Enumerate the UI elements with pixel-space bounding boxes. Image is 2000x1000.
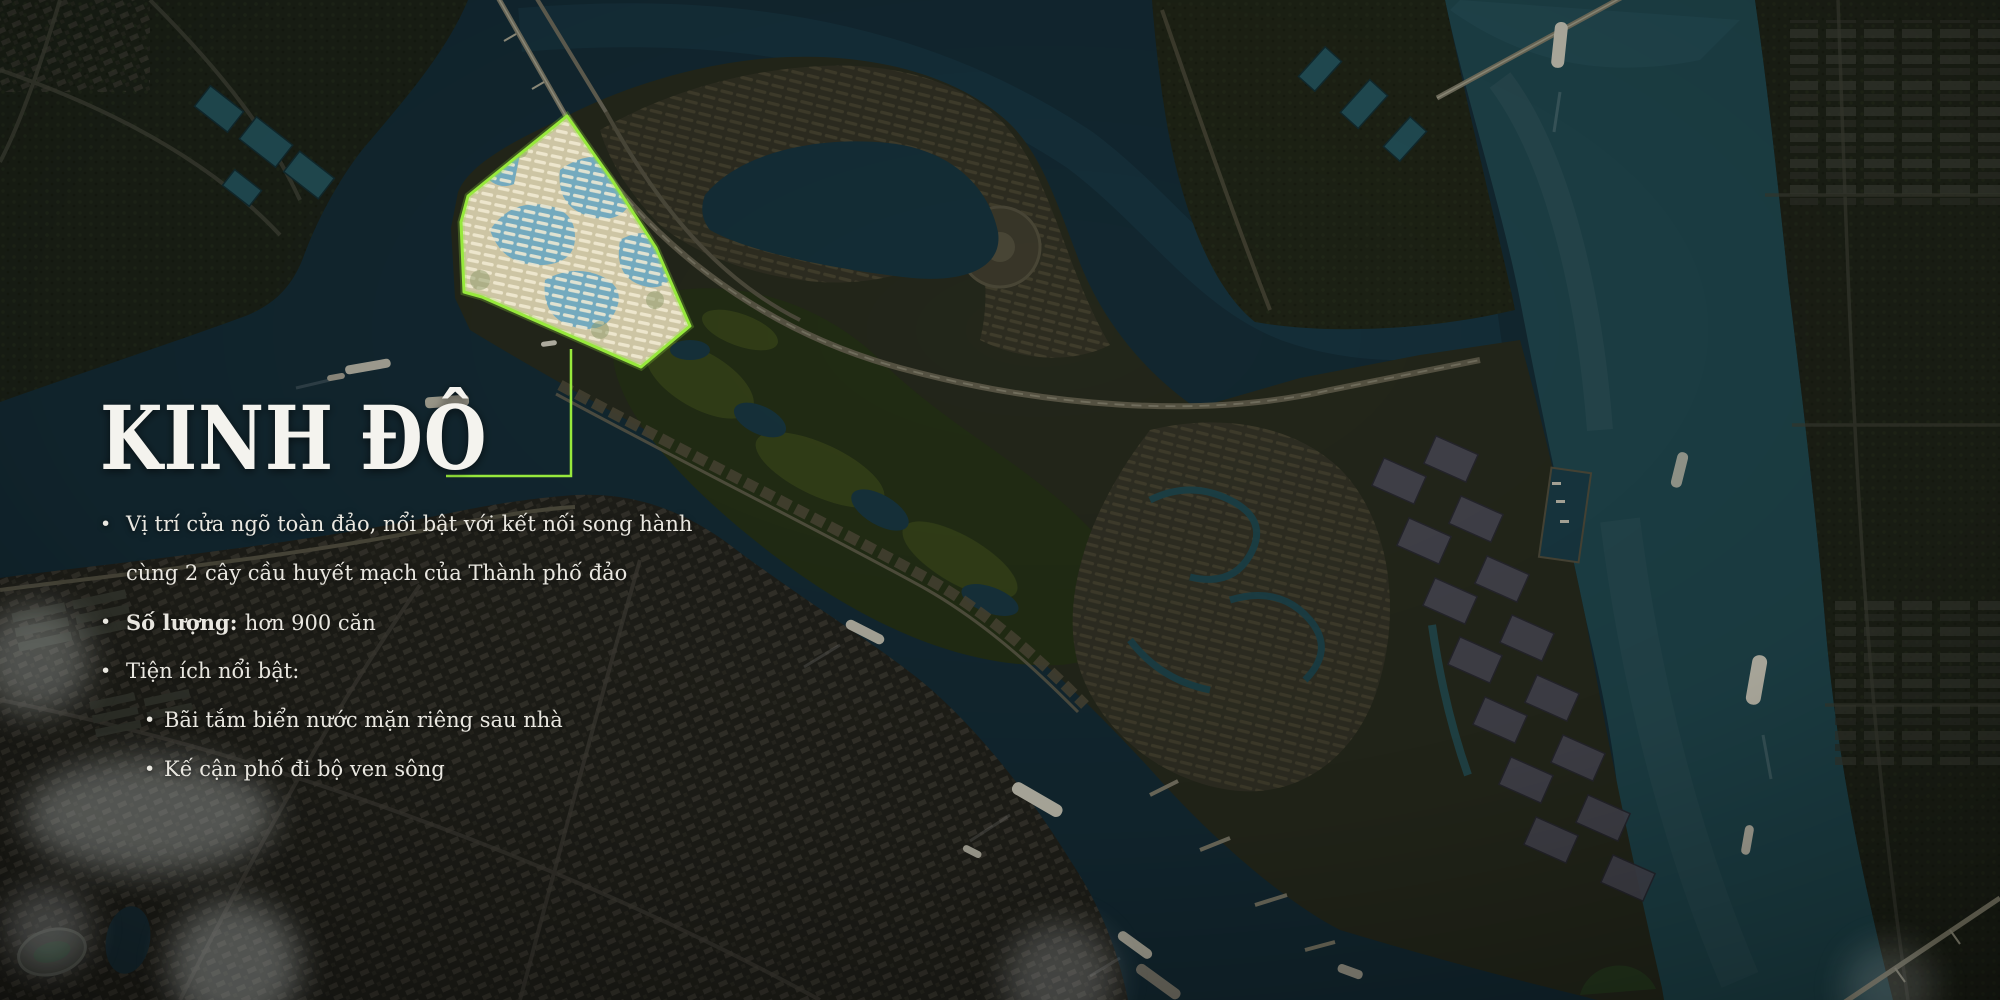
bullet-list: • Vị trí cửa ngõ toàn đảo, nổi bật với k…	[92, 500, 732, 794]
bullet-text: Tiện ích nổi bật:	[126, 659, 299, 683]
bullet-text: Số lượng:hơn 900 căn	[126, 611, 376, 635]
bullet-item: • Vị trí cửa ngõ toàn đảo, nổi bật với k…	[92, 500, 732, 549]
bullet-item: • Tiện ích nổi bật:	[92, 647, 732, 696]
bullet-subitem: • Kế cận phố đi bộ ven sông	[92, 745, 732, 794]
bullet-dot: •	[144, 745, 155, 794]
bullet-subitem: • Bãi tắm biển nước mặn riêng sau nhà	[92, 696, 732, 745]
bullet-text: Kế cận phố đi bộ ven sông	[164, 757, 445, 781]
bullet-item-continuation: cùng 2 cây cầu huyết mạch của Thành phố …	[92, 549, 732, 598]
bullet-text: cùng 2 cây cầu huyết mạch của Thành phố …	[126, 561, 627, 585]
page-title: KINH ĐÔ	[100, 394, 572, 482]
bullet-dot: •	[144, 696, 155, 745]
bullet-dot: •	[100, 647, 111, 696]
bullet-text: Vị trí cửa ngõ toàn đảo, nổi bật với kết…	[126, 512, 692, 536]
bullet-item: • Số lượng:hơn 900 căn	[92, 598, 732, 647]
bullet-dot: •	[100, 598, 111, 647]
bullet-dot: •	[100, 500, 111, 549]
bullet-text: Bãi tắm biển nước mặn riêng sau nhà	[164, 708, 563, 732]
slide-kinh-do: KINH ĐÔ • Vị trí cửa ngõ toàn đảo, nổi b…	[0, 0, 2000, 1000]
